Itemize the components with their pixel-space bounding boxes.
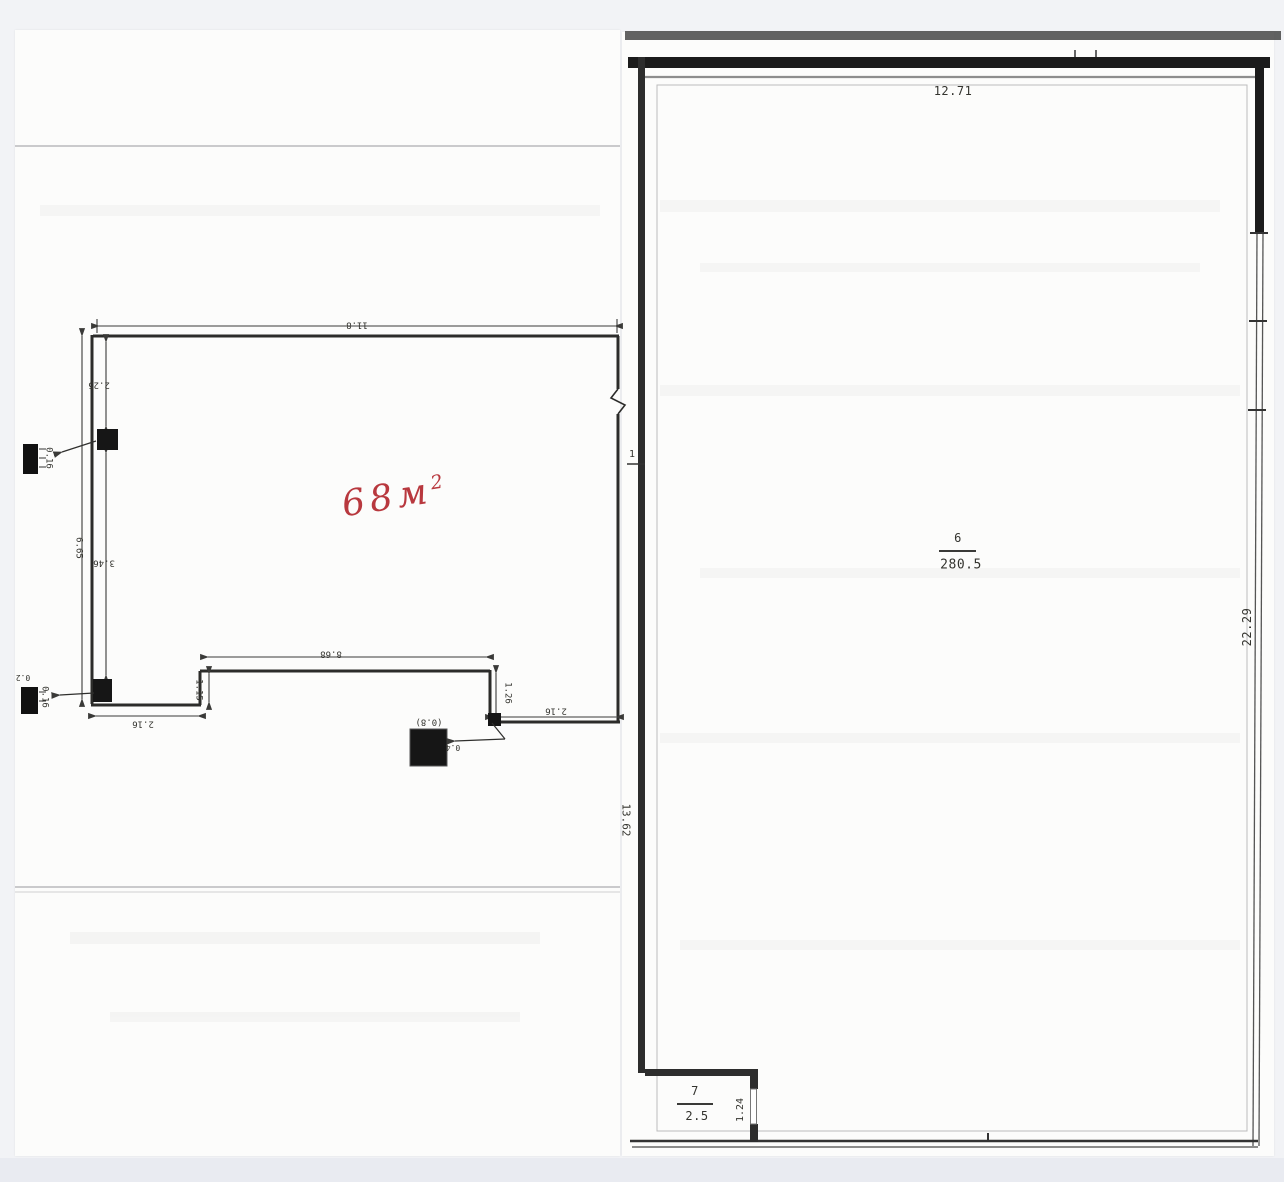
dim-right-plan-right: 22.29	[1241, 608, 1253, 647]
fraction-bar-room6	[939, 550, 976, 552]
area-value: 68	[339, 476, 401, 525]
dim-step-left: 1.15	[194, 679, 203, 701]
wall-break-symbol	[611, 389, 625, 414]
dim-step-right: 1.26	[503, 682, 512, 704]
dim-inner-width: 8.68	[320, 649, 342, 658]
dim-side-upper: 2.25	[88, 380, 110, 389]
room6-area: 280.5	[940, 559, 982, 572]
room6-number: 6	[954, 532, 962, 544]
room7-area: 2.5	[685, 1110, 708, 1122]
dim-bottom-right: 2.16	[545, 706, 567, 715]
dim-side-lower: 3.46	[93, 558, 115, 567]
dim-left-wall-opening: 1	[629, 450, 635, 460]
right-plan-walls	[627, 50, 1270, 1147]
scan-edge-artifact	[625, 31, 1281, 40]
label-center-column-offset: 0.4	[446, 743, 460, 751]
room7-door	[751, 1089, 757, 1124]
label-center-column-size: (0.8)	[415, 717, 442, 726]
label-bottom-column-offset: 0.2	[16, 673, 30, 681]
scanned-floorplan-document: 11.8 6.65 2.25 3.46 8.68 1.15 1.26 2.16 …	[0, 0, 1284, 1182]
left-plan-walls	[91, 335, 620, 723]
label-top-column-size: 0.16	[44, 447, 53, 469]
dim-right-plan-left: 13.62	[621, 803, 632, 836]
dim-room7-door: 1.24	[736, 1098, 746, 1122]
dim-top-width: 11.8	[346, 320, 368, 329]
room7-number: 7	[691, 1085, 699, 1097]
plan-linework	[0, 0, 1284, 1182]
dim-side-total: 6.65	[74, 537, 83, 559]
dim-right-plan-top: 12.71	[934, 85, 973, 97]
fraction-bar-room7	[677, 1103, 713, 1105]
dim-bottom-left: 2.16	[132, 719, 154, 728]
label-bottom-column-size: 0.16	[40, 686, 49, 708]
